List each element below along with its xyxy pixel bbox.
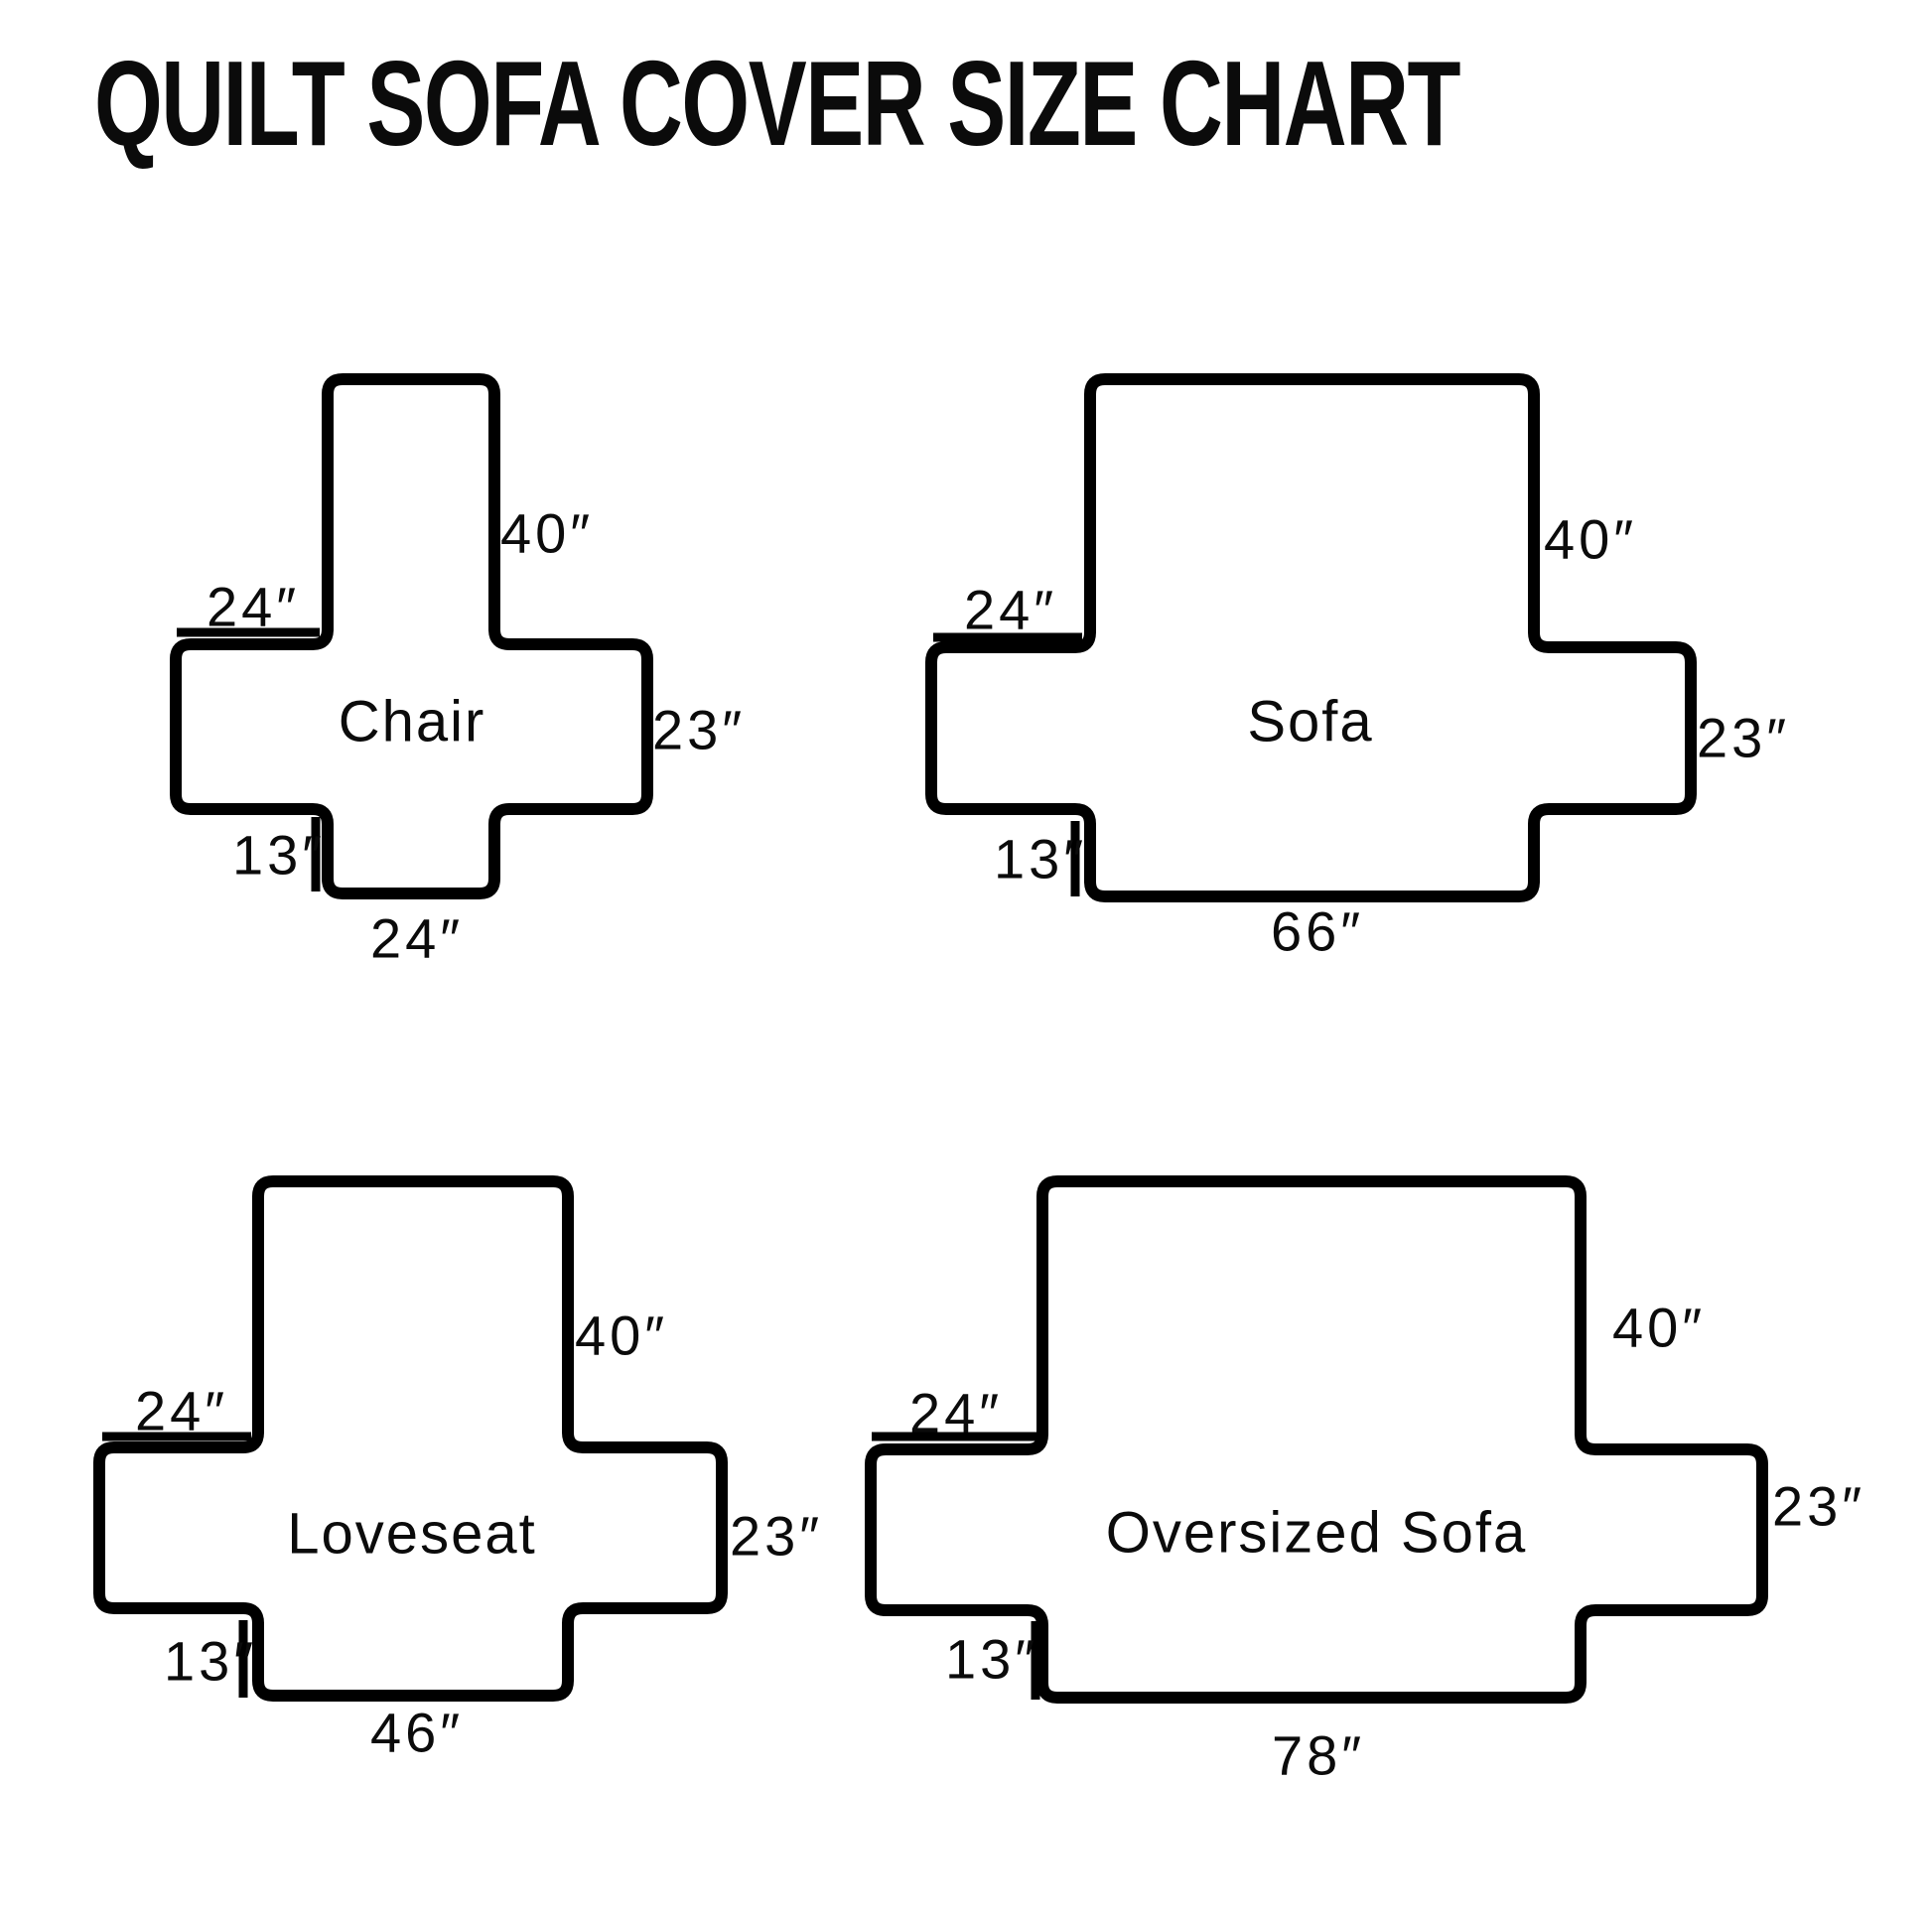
chair-seat-width-label: 24″ <box>370 907 464 970</box>
size-chart-diagram: QUILT SOFA COVER SIZE CHART Chair40″24″2… <box>0 0 1932 1918</box>
chair-name-label: Chair <box>339 690 486 754</box>
oversized-sofa-side-label: 23″ <box>1772 1475 1865 1538</box>
chair-back-height-label: 40″ <box>500 502 594 565</box>
chair-side-label: 23″ <box>652 699 746 761</box>
size-chart-page: QUILT SOFA COVER SIZE CHART Chair40″24″2… <box>0 0 1932 1918</box>
oversized-sofa-seat-width-label: 78″ <box>1272 1724 1365 1787</box>
chair-diagram: Chair40″24″23″13″24″ <box>176 379 746 970</box>
loveseat-arm-top-label: 24″ <box>135 1380 228 1442</box>
loveseat-front-drop-label: 13″ <box>164 1630 257 1693</box>
sofa-side-label: 23″ <box>1697 707 1790 769</box>
oversized-sofa-arm-top-label: 24″ <box>909 1382 1003 1444</box>
loveseat-back-height-label: 40″ <box>575 1304 668 1367</box>
page-title: QUILT SOFA COVER SIZE CHART <box>94 36 1460 171</box>
sofa-front-drop-label: 13″ <box>994 828 1087 890</box>
oversized-sofa-front-drop-label: 13″ <box>945 1628 1038 1691</box>
loveseat-diagram: Loveseat40″24″23″13″46″ <box>99 1181 823 1764</box>
loveseat-side-label: 23″ <box>730 1505 823 1568</box>
loveseat-seat-width-label: 46″ <box>370 1702 464 1764</box>
oversized-sofa-name-label: Oversized Sofa <box>1106 1501 1528 1566</box>
sofa-seat-width-label: 66″ <box>1271 900 1364 963</box>
chair-arm-top-label: 24″ <box>207 576 300 638</box>
loveseat-name-label: Loveseat <box>287 1502 536 1567</box>
sofa-diagram: Sofa40″24″23″13″66″ <box>931 379 1790 963</box>
sofa-arm-top-label: 24″ <box>964 579 1057 641</box>
sofa-name-label: Sofa <box>1247 690 1373 754</box>
chair-front-drop-label: 13″ <box>232 824 326 887</box>
oversized-sofa-back-height-label: 40″ <box>1612 1297 1706 1359</box>
oversized-sofa-diagram: Oversized Sofa40″24″23″13″78″ <box>871 1181 1865 1787</box>
sofa-back-height-label: 40″ <box>1544 508 1637 571</box>
